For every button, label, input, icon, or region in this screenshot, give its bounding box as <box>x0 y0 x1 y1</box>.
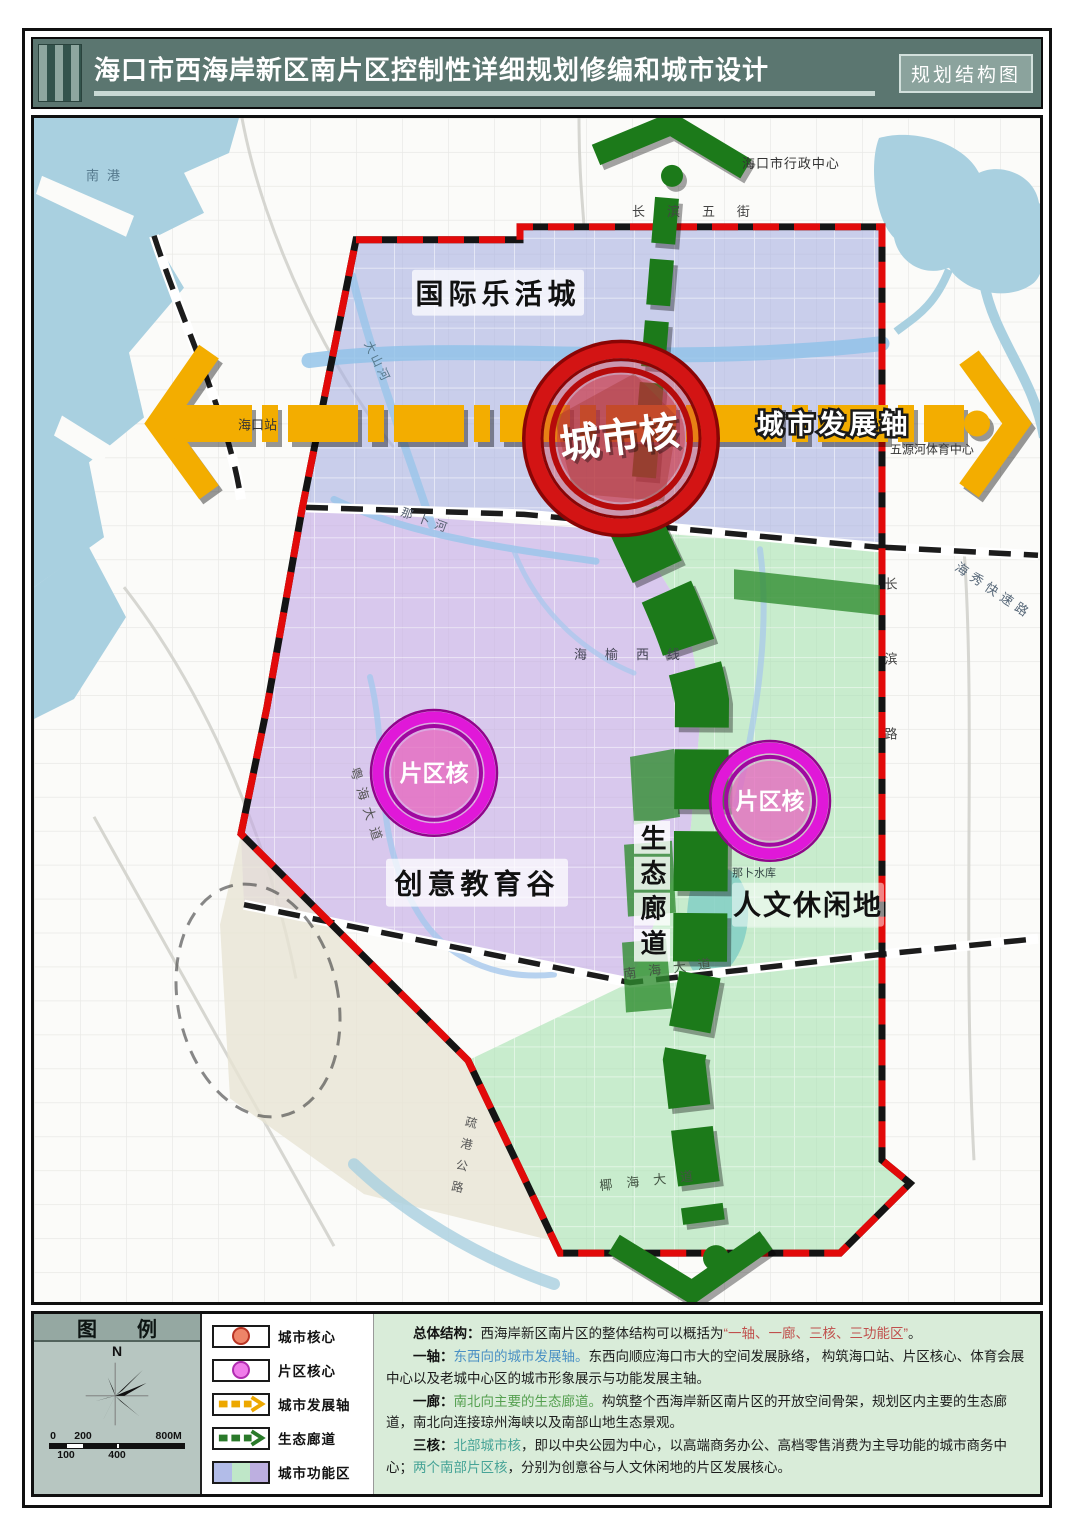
label-admin-center: 海口市行政中心 <box>742 156 840 171</box>
structure-notes: 总体结构：西海岸新区南片区的整体结构可以概括为“一轴、一廊、三核、三功能区”。 … <box>374 1314 1040 1494</box>
label-zone-purple: 创意教育谷 <box>394 868 560 900</box>
label-changbin-wujie: 长滨五街 <box>632 204 772 219</box>
label-haiyu-west-line: 海榆西线 <box>574 647 698 662</box>
district-core-right-label: 片区核 <box>736 788 805 814</box>
planning-map: 城市核 城市核 片区核 片区核 <box>34 118 1040 1302</box>
axis-symbol-icon <box>216 1395 266 1413</box>
header-stripes-decoration <box>38 44 82 102</box>
legend-item-district-core: 片区核心 <box>212 1356 367 1384</box>
district-core-left: 片区核 <box>371 710 497 836</box>
label-zone-green: 人文休闲地 <box>733 889 883 921</box>
page-title: 海口市西海岸新区南片区控制性详细规划修编和城市设计 <box>94 50 899 87</box>
legend-item-city-core: 城市核心 <box>212 1322 367 1350</box>
legend-item-development-axis: 城市发展轴 <box>212 1390 367 1418</box>
scale-bar: 0 200 800M 100 400 <box>49 1430 185 1462</box>
note-three-cores: 三核：北部城市核，即以中央公园为中心，以高端商务办公、高档零售消费为主导功能的城… <box>386 1435 1026 1479</box>
header: 海口市西海岸新区南片区控制性详细规划修编和城市设计 规划结构图 <box>31 37 1043 109</box>
district-core-symbol-icon <box>232 1361 250 1379</box>
compass-rose-icon <box>80 1359 154 1429</box>
label-haikou-station: 海口站 <box>238 417 277 432</box>
function-zones-symbol-icon <box>212 1461 270 1484</box>
legend-title: 图例 <box>34 1314 200 1342</box>
north-label: N <box>112 1343 122 1359</box>
note-one-corridor: 一廊：南北向主要的生态廊道。构筑整个西海岸新区南片区的开放空间骨架，规划区内主要… <box>386 1391 1026 1435</box>
label-wuyuanhe-sports: 五源河体育中心 <box>890 441 974 456</box>
note-overall-structure: 总体结构：西海岸新区南片区的整体结构可以概括为“一轴、一廊、三核、三功能区”。 <box>386 1323 1026 1345</box>
label-eco-corridor: 生态廊道 <box>637 825 667 965</box>
district-core-left-label: 片区核 <box>400 760 469 786</box>
corridor-symbol-icon <box>216 1429 266 1447</box>
district-core-right: 片区核 <box>710 741 830 861</box>
legend-items: 城市核心 片区核心 城市发展轴 <box>202 1314 374 1494</box>
legend: 图例 N 0 <box>31 1311 1043 1497</box>
city-core-circle: 城市核 城市核 <box>524 342 718 536</box>
title-underline <box>94 91 875 96</box>
label-nabu-reservoir: 那卜水库 <box>732 867 776 880</box>
drawing-type-badge: 规划结构图 <box>899 54 1033 93</box>
note-one-axis: 一轴：东西向的城市发展轴。东西向顺应海口市大的空间发展脉络， 构筑海口站、片区核… <box>386 1346 1026 1390</box>
legend-key-box: 图例 N 0 <box>34 1314 202 1494</box>
legend-item-function-zones: 城市功能区 <box>212 1458 367 1486</box>
legend-item-eco-corridor: 生态廊道 <box>212 1424 367 1452</box>
label-zone-blue: 国际乐活城 <box>416 279 581 310</box>
label-changbin-road: 长滨路 <box>882 577 897 802</box>
page-frame: 海口市西海岸新区南片区控制性详细规划修编和城市设计 规划结构图 <box>22 28 1052 1508</box>
label-development-axis: 城市发展轴 <box>757 408 912 439</box>
map-frame: 城市核 城市核 片区核 片区核 <box>31 115 1043 1305</box>
label-nangang: 南港 <box>86 168 128 183</box>
city-core-symbol-icon <box>232 1327 250 1345</box>
